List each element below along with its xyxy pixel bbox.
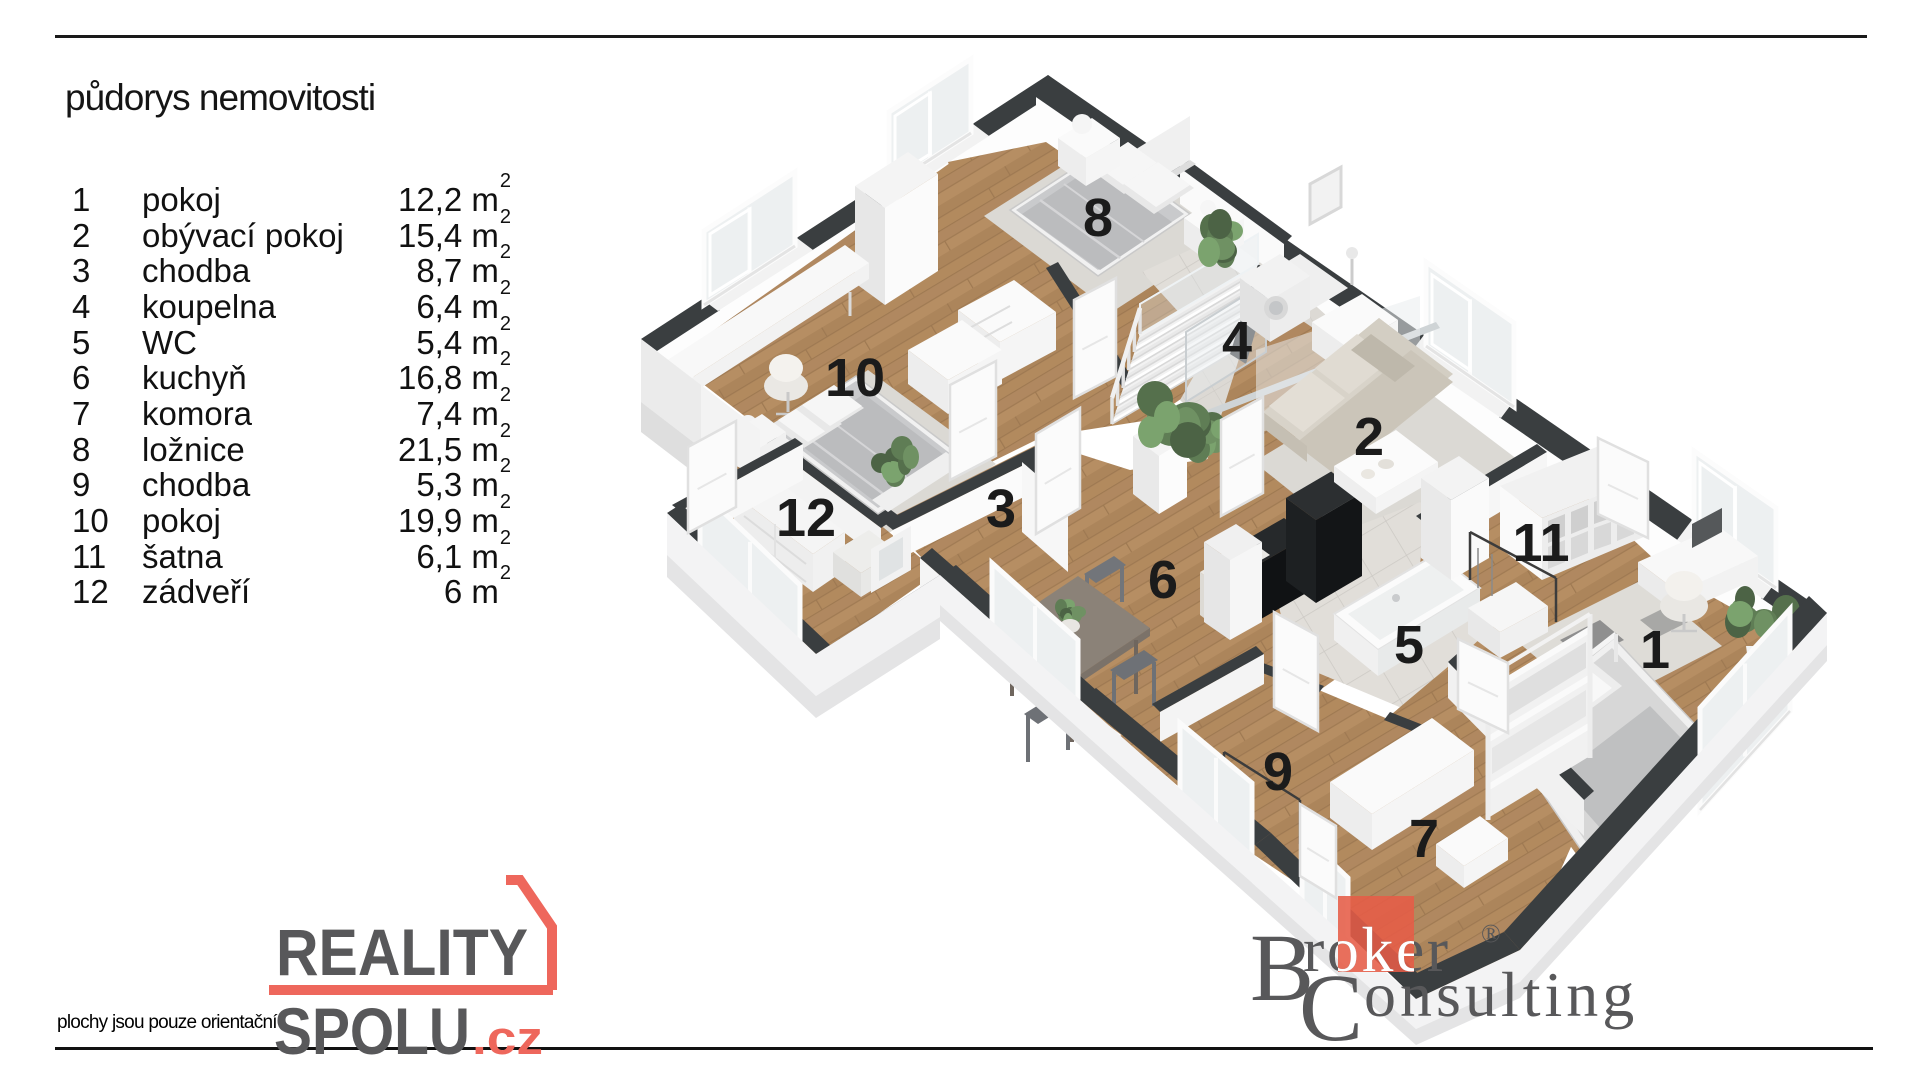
svg-text:1: 1 [1640,620,1670,680]
svg-text:3: 3 [986,479,1016,539]
svg-text:11: 11 [1512,513,1569,573]
svg-text:REALITY: REALITY [276,915,528,989]
svg-text:2: 2 [1354,407,1384,467]
svg-text:9: 9 [1263,742,1293,802]
svg-text:10: 10 [825,348,885,408]
svg-text:6: 6 [1148,550,1178,610]
svg-text:5: 5 [1394,615,1424,675]
svg-text:8: 8 [1083,188,1113,248]
svg-text:.cz: .cz [472,1011,543,1064]
svg-text:®: ® [1481,919,1501,948]
svg-text:12: 12 [776,488,836,548]
svg-text:7: 7 [1409,809,1439,869]
svg-text:SPOLU: SPOLU [274,994,470,1068]
svg-text:4: 4 [1222,311,1252,371]
